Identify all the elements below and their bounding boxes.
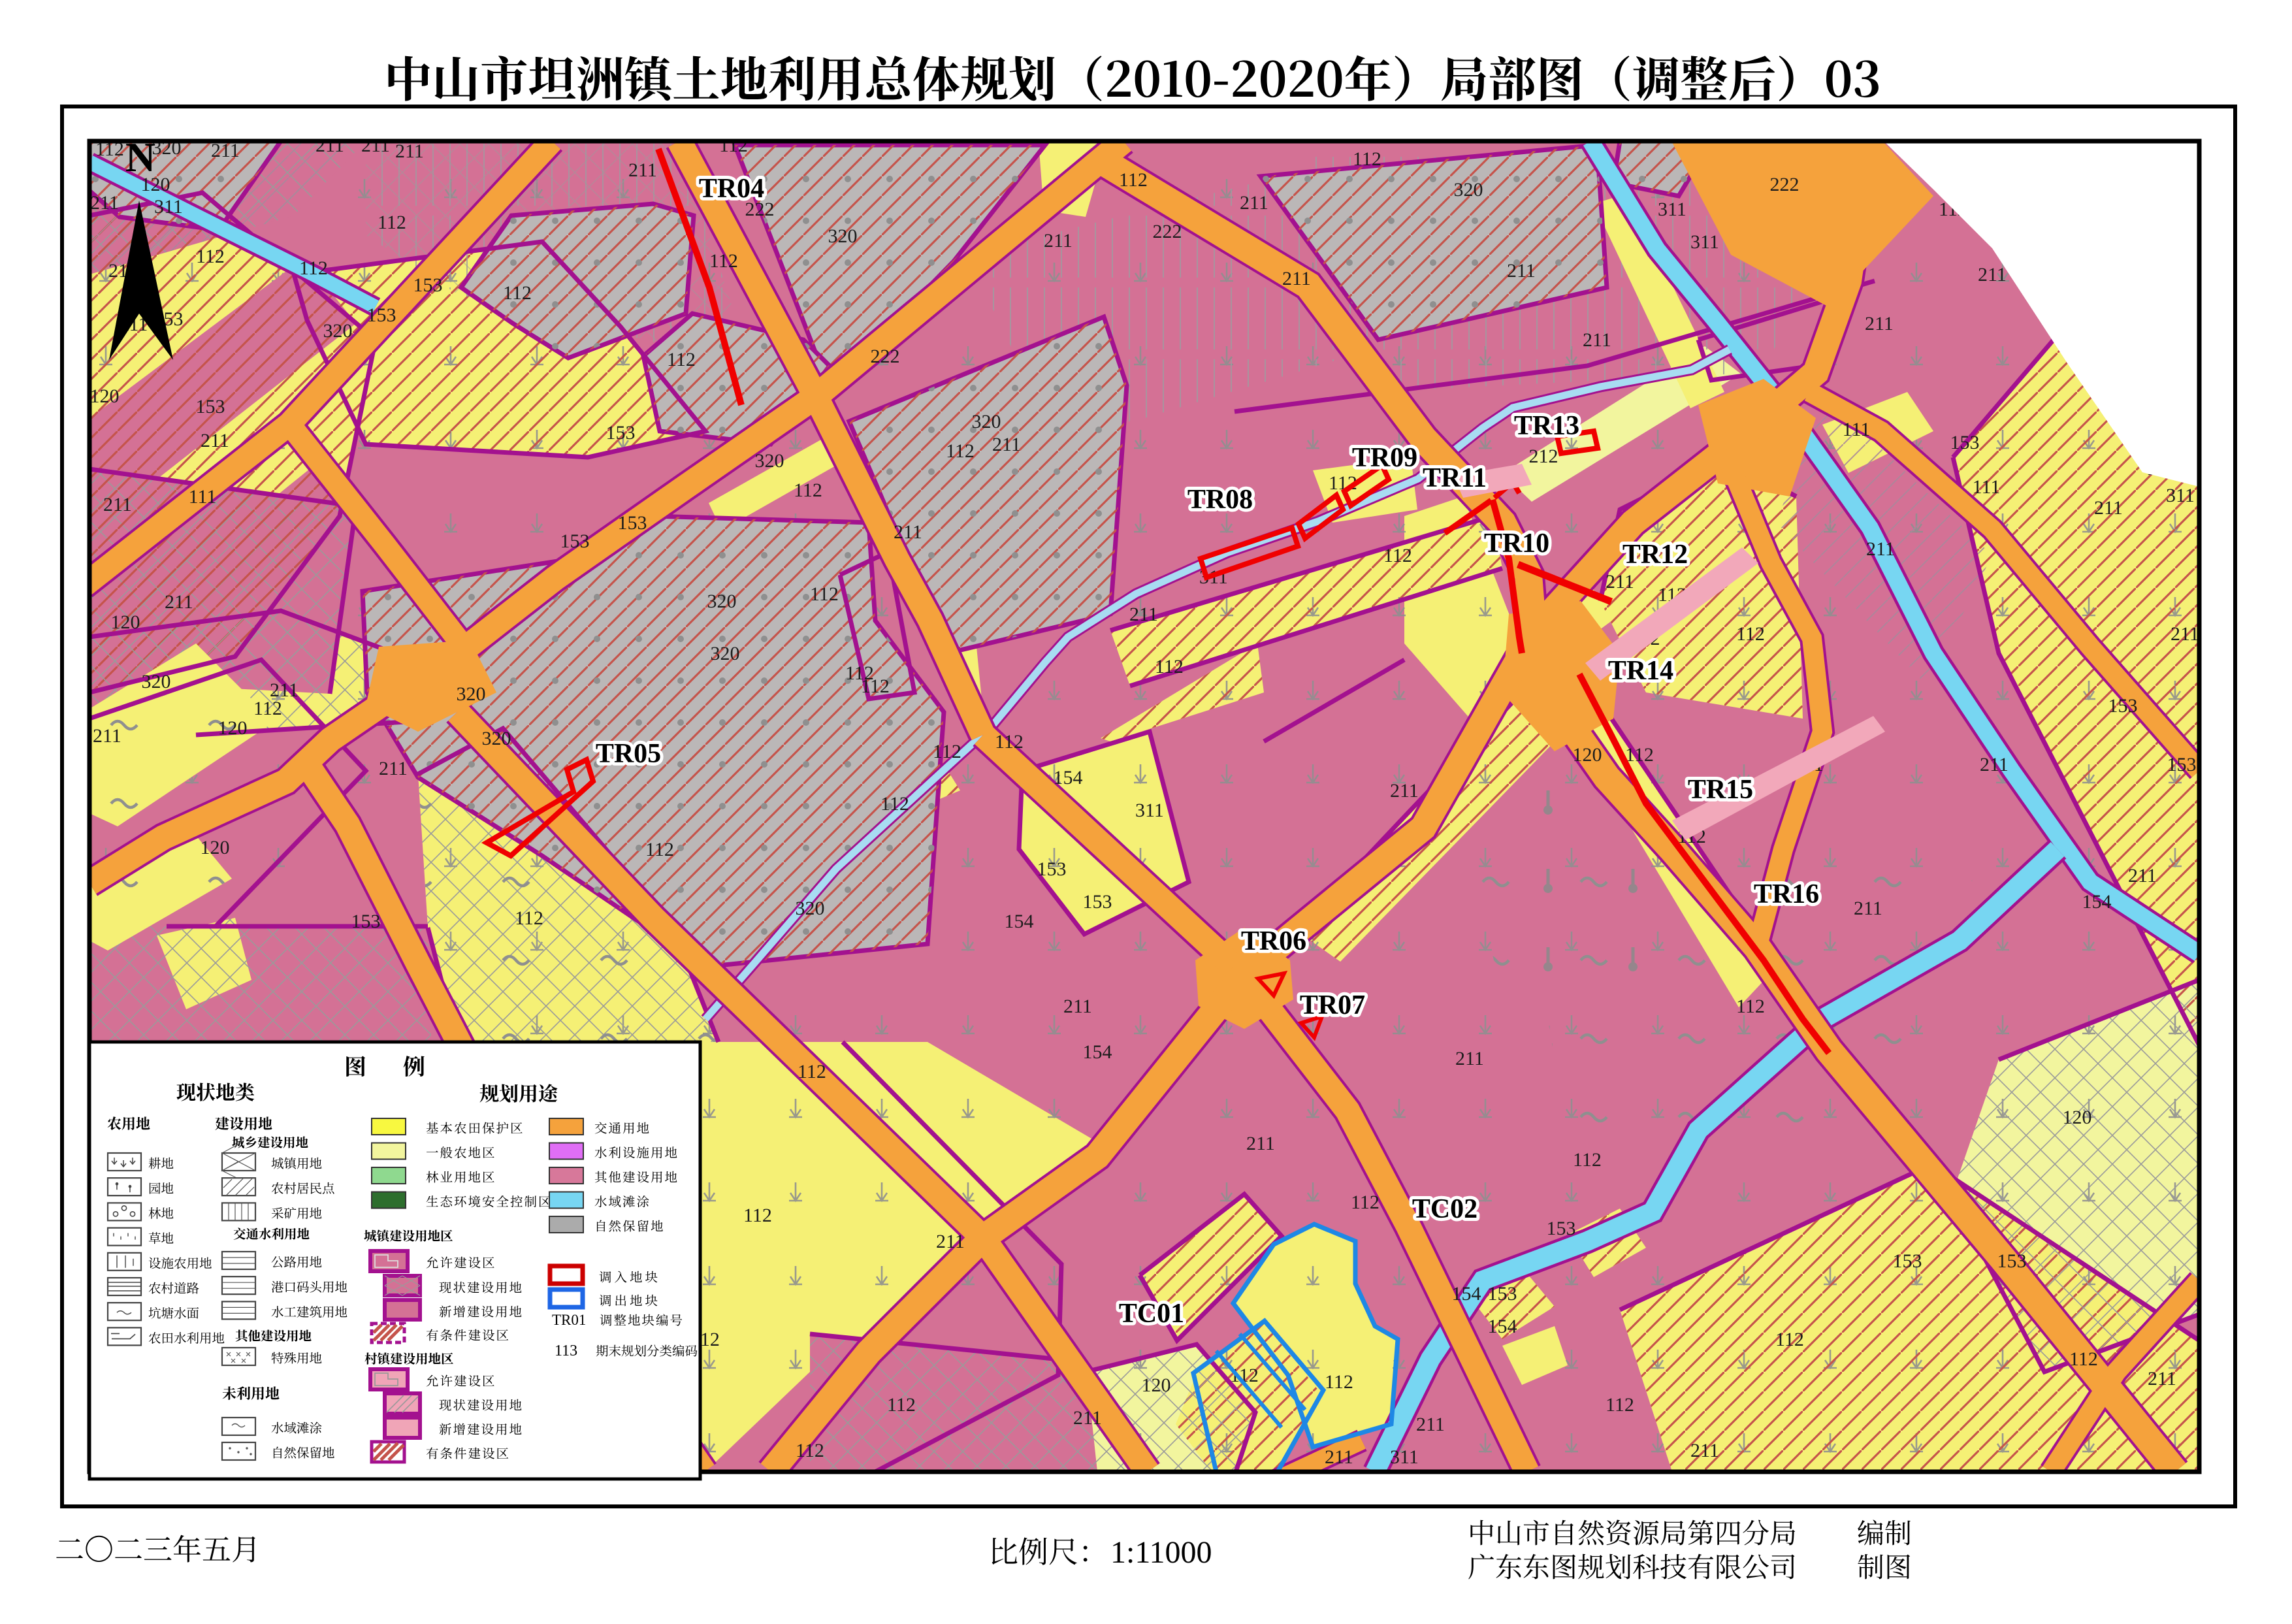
svg-text:120: 120 <box>90 385 120 407</box>
svg-text:211: 211 <box>1854 898 1882 919</box>
svg-text:211: 211 <box>1866 538 1895 560</box>
svg-text:TR12: TR12 <box>1622 540 1688 570</box>
svg-text:153: 153 <box>1488 1283 1517 1305</box>
svg-text:320: 320 <box>323 320 353 342</box>
svg-text:1:11000: 1:11000 <box>1110 1535 1212 1570</box>
svg-text:153: 153 <box>560 530 590 552</box>
svg-text:111: 111 <box>1973 476 2001 498</box>
svg-text:211: 211 <box>1865 313 1894 334</box>
svg-text:211: 211 <box>1129 604 1158 625</box>
svg-text:320: 320 <box>482 728 511 749</box>
svg-text:112: 112 <box>946 440 975 462</box>
svg-text:153: 153 <box>2108 695 2138 717</box>
svg-text:320: 320 <box>457 683 486 705</box>
svg-text:112: 112 <box>299 257 328 279</box>
svg-text:211: 211 <box>1282 268 1311 289</box>
svg-text:112: 112 <box>1736 623 1765 645</box>
svg-text:320: 320 <box>707 591 737 612</box>
svg-text:211: 211 <box>1325 1446 1353 1468</box>
svg-text:222: 222 <box>1153 221 1182 242</box>
svg-text:211: 211 <box>361 135 390 156</box>
svg-text:112: 112 <box>1775 1329 1804 1350</box>
svg-text:320: 320 <box>142 671 171 692</box>
svg-text:120: 120 <box>111 611 140 633</box>
svg-text:153: 153 <box>606 422 636 444</box>
svg-text:112: 112 <box>810 583 839 605</box>
svg-text:112: 112 <box>1736 996 1765 1017</box>
svg-text:112: 112 <box>1625 744 1654 766</box>
svg-text:113: 113 <box>555 1342 577 1359</box>
svg-text:320: 320 <box>711 643 740 664</box>
svg-text:112: 112 <box>1351 1192 1380 1213</box>
svg-text:TC01: TC01 <box>1119 1299 1184 1329</box>
svg-text:153: 153 <box>618 512 647 534</box>
svg-text:112: 112 <box>743 1205 772 1226</box>
svg-text:211: 211 <box>992 434 1021 455</box>
svg-text:112: 112 <box>2069 1348 2098 1370</box>
svg-text:112: 112 <box>796 1440 824 1461</box>
svg-text:112: 112 <box>1573 1149 1602 1171</box>
svg-text:211: 211 <box>628 159 657 181</box>
svg-text:211: 211 <box>1390 780 1419 802</box>
svg-text:311: 311 <box>1658 199 1687 220</box>
svg-text:320: 320 <box>972 411 1001 432</box>
svg-text:153: 153 <box>351 911 381 932</box>
svg-text:120: 120 <box>2063 1107 2092 1128</box>
svg-text:112: 112 <box>798 1061 826 1082</box>
svg-text:211: 211 <box>201 430 229 451</box>
svg-text:211: 211 <box>165 591 193 613</box>
svg-text:TR10: TR10 <box>1484 528 1549 559</box>
svg-text:153: 153 <box>1037 858 1067 880</box>
svg-text:311: 311 <box>2166 485 2195 506</box>
svg-text:211: 211 <box>1455 1048 1484 1069</box>
svg-text:112: 112 <box>196 246 225 267</box>
svg-text:153: 153 <box>367 304 396 326</box>
svg-text:212: 212 <box>1529 446 1558 467</box>
svg-text:211: 211 <box>1507 260 1536 282</box>
svg-text:211: 211 <box>2094 497 2123 519</box>
svg-text:153: 153 <box>2167 754 2197 775</box>
svg-text:211: 211 <box>1583 329 1611 351</box>
svg-text:211: 211 <box>936 1231 965 1252</box>
svg-text:211: 211 <box>2128 865 2157 886</box>
svg-text:111: 111 <box>1843 419 1871 440</box>
svg-text:111: 111 <box>189 486 217 508</box>
svg-text:211: 211 <box>2148 1368 2176 1389</box>
svg-text:120: 120 <box>1142 1374 1171 1396</box>
svg-text:222: 222 <box>871 346 900 367</box>
svg-text:311: 311 <box>1390 1446 1419 1468</box>
svg-text:211: 211 <box>1980 754 2009 775</box>
svg-text:154: 154 <box>1452 1283 1481 1305</box>
svg-text:112: 112 <box>880 793 909 815</box>
svg-text:112: 112 <box>1353 148 1381 170</box>
svg-text:112: 112 <box>1325 1371 1353 1393</box>
svg-text:112: 112 <box>794 479 822 501</box>
svg-text:112: 112 <box>1155 656 1184 677</box>
svg-text:112: 112 <box>515 907 543 929</box>
svg-text:211: 211 <box>1073 1407 1102 1429</box>
svg-text:TR14: TR14 <box>1608 656 1673 686</box>
svg-text:TR06: TR06 <box>1241 926 1306 956</box>
svg-text:211: 211 <box>395 140 424 162</box>
svg-text:311: 311 <box>1690 231 1719 253</box>
svg-text:211: 211 <box>1063 996 1092 1017</box>
svg-text:211: 211 <box>894 521 922 543</box>
svg-text:112: 112 <box>253 698 282 719</box>
svg-text:TR15: TR15 <box>1688 775 1753 805</box>
svg-text:154: 154 <box>2082 891 2112 913</box>
svg-text:TR05: TR05 <box>596 739 661 769</box>
svg-text:320: 320 <box>828 225 858 247</box>
svg-text:153: 153 <box>1997 1250 2027 1272</box>
svg-text:211: 211 <box>1690 1440 1719 1461</box>
svg-text:153: 153 <box>1547 1218 1576 1239</box>
svg-text:311: 311 <box>1135 800 1164 821</box>
svg-text:211: 211 <box>315 135 344 156</box>
svg-text:TR09: TR09 <box>1352 443 1417 473</box>
svg-text:TC02: TC02 <box>1412 1194 1477 1224</box>
svg-text:211: 211 <box>379 758 408 779</box>
svg-text:TR01: TR01 <box>552 1312 586 1328</box>
svg-text:TR08: TR08 <box>1187 485 1253 515</box>
svg-text:211: 211 <box>1044 230 1073 252</box>
svg-text:211: 211 <box>1606 571 1634 593</box>
svg-text:112: 112 <box>667 349 696 370</box>
svg-text:154: 154 <box>1083 1041 1112 1063</box>
svg-text:211: 211 <box>90 192 119 214</box>
svg-text:153: 153 <box>413 274 443 296</box>
svg-text:222: 222 <box>1770 174 1800 195</box>
svg-text:320: 320 <box>1454 179 1483 201</box>
svg-text:112: 112 <box>378 212 406 233</box>
svg-text:112: 112 <box>995 731 1024 753</box>
svg-text:120: 120 <box>1573 744 1602 766</box>
svg-text:311: 311 <box>154 196 183 218</box>
svg-text:153: 153 <box>1950 432 1980 453</box>
svg-text:154: 154 <box>1054 767 1083 788</box>
svg-text:153: 153 <box>196 396 225 417</box>
svg-text:153: 153 <box>1083 891 1112 913</box>
svg-text:112: 112 <box>503 282 532 304</box>
svg-text:TR04: TR04 <box>699 174 764 204</box>
svg-text:112: 112 <box>933 741 961 762</box>
svg-text:112: 112 <box>709 250 738 272</box>
svg-text:120: 120 <box>218 717 248 739</box>
svg-text:112: 112 <box>1383 545 1412 566</box>
svg-text:TR16: TR16 <box>1754 879 1819 909</box>
svg-text:112: 112 <box>719 135 748 156</box>
svg-text:211: 211 <box>2171 623 2199 645</box>
svg-text:112: 112 <box>887 1394 916 1416</box>
svg-text:211: 211 <box>1246 1133 1275 1154</box>
svg-text:TR07: TR07 <box>1300 990 1365 1020</box>
svg-text:112: 112 <box>1606 1394 1634 1416</box>
svg-text:211: 211 <box>103 494 132 515</box>
svg-text:211: 211 <box>93 725 121 747</box>
svg-text:TR11: TR11 <box>1423 463 1487 493</box>
svg-text:N: N <box>125 134 155 180</box>
svg-text:211: 211 <box>1978 264 2007 285</box>
svg-text:211: 211 <box>1240 192 1268 214</box>
svg-text:112: 112 <box>645 839 674 860</box>
svg-text:TR13: TR13 <box>1514 411 1579 441</box>
svg-text:112: 112 <box>1119 169 1148 191</box>
svg-text:320: 320 <box>755 450 784 472</box>
svg-text:154: 154 <box>1488 1316 1517 1337</box>
svg-text:120: 120 <box>201 837 230 858</box>
svg-text:211: 211 <box>1416 1414 1445 1435</box>
svg-text:154: 154 <box>1005 911 1034 932</box>
svg-text:153: 153 <box>1893 1250 1922 1272</box>
svg-text:320: 320 <box>796 898 825 919</box>
svg-text:112: 112 <box>845 662 874 684</box>
